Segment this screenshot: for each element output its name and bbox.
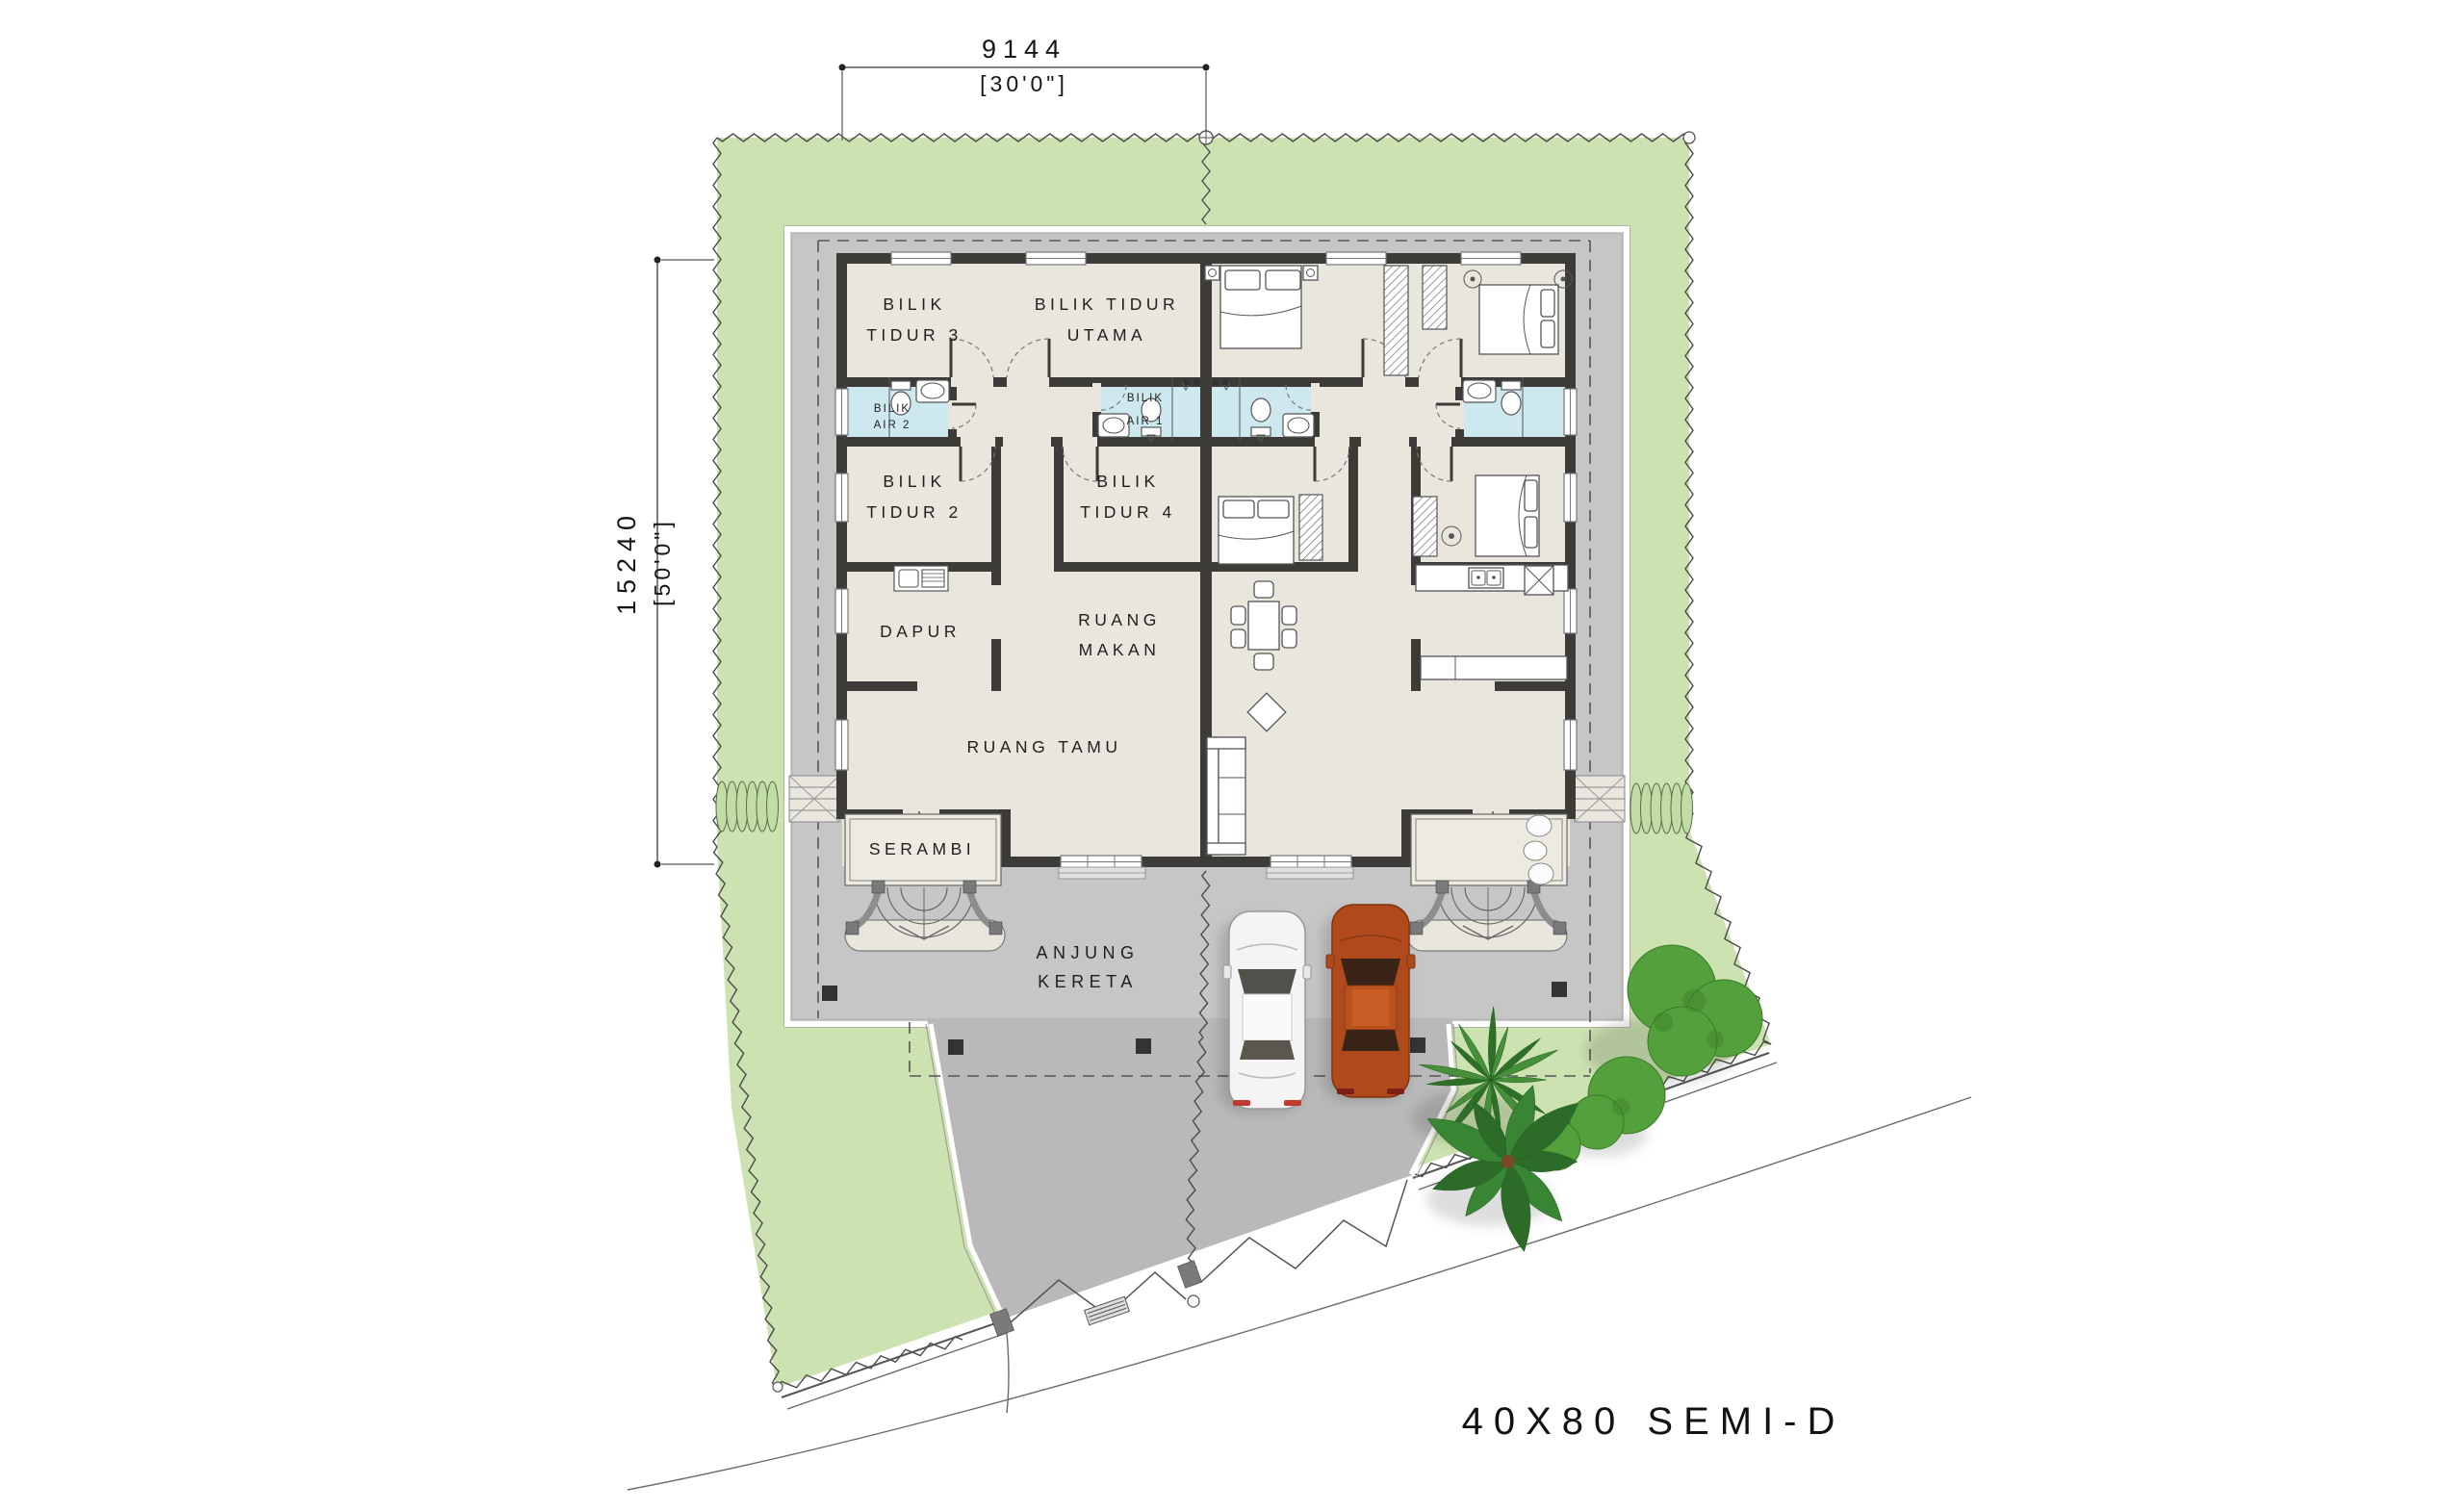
taillight — [1387, 1088, 1404, 1094]
plan-title: 40X80 SEMI-D — [1462, 1400, 1846, 1443]
front-step — [1059, 867, 1145, 879]
boundary-peg-top-right — [1683, 132, 1695, 143]
room-label-serambi: SERAMBI — [869, 839, 975, 858]
column — [1552, 982, 1567, 997]
wardrobe — [1299, 495, 1322, 560]
bed-4 — [1476, 475, 1539, 556]
kitchen-cabinet-row — [1421, 656, 1567, 679]
room-label-bilik-air-2: AIR 2 — [874, 420, 911, 431]
room-label-bilik-tidur-4: TIDUR 4 — [1080, 502, 1176, 522]
gate-pivot — [1188, 1295, 1199, 1307]
boundary-peg-bottom-left — [773, 1382, 783, 1392]
side-mirror — [1407, 955, 1415, 968]
dimension-width-ft: [30'0"] — [980, 71, 1068, 96]
sofa — [1207, 737, 1245, 855]
serambi-porch — [845, 814, 1005, 951]
wardrobe — [1384, 266, 1408, 375]
dimension-top: 9144 [30'0"] — [839, 35, 1210, 141]
room-label-bilik-tidur-2: TIDUR 2 — [866, 502, 962, 522]
white-car — [1219, 911, 1311, 1112]
room-label-anjung-kereta: KERETA — [1038, 972, 1138, 991]
gate-post-middle — [1177, 1261, 1201, 1289]
room-label-bilik-tidur-utama: UTAMA — [1067, 325, 1146, 345]
side-steps-right — [1575, 776, 1625, 822]
room-label-anjung-kereta: ANJUNG — [1036, 943, 1139, 962]
floor-plan-page: BILIK TIDUR 3 BILIK TIDUR UTAMA BILIK AI… — [0, 0, 2464, 1511]
room-label-bilik-tidur-2: BILIK — [883, 472, 945, 491]
room-label-bilik-tidur-3: BILIK — [883, 295, 945, 314]
orange-car — [1322, 905, 1415, 1101]
taillight — [1337, 1088, 1354, 1094]
room-label-bilik-air-2: BILIK — [874, 403, 911, 415]
wardrobe — [1413, 497, 1437, 556]
room-label-bilik-tidur-utama: BILIK TIDUR — [1035, 295, 1179, 314]
bed-master — [1205, 266, 1318, 348]
room-label-ruang-makan: RUANG — [1078, 610, 1161, 629]
rear-window — [1240, 1040, 1295, 1060]
side-mirror — [1223, 965, 1231, 979]
car-roof — [1243, 994, 1292, 1040]
windshield — [1238, 969, 1296, 994]
room-label-ruang-makan: MAKAN — [1079, 640, 1161, 659]
rear-window — [1342, 1030, 1399, 1051]
taillight — [1284, 1100, 1301, 1106]
room-label-ruang-tamu: RUANG TAMU — [966, 737, 1121, 756]
vent — [1193, 379, 1199, 385]
drain-grate — [1085, 1296, 1130, 1324]
windshield — [1341, 959, 1400, 986]
room-label-dapur: DAPUR — [880, 622, 961, 641]
roof-gloss — [1352, 989, 1389, 1026]
side-steps-left — [789, 776, 839, 822]
room-label-bilik-air-1: AIR 1 — [1127, 416, 1165, 427]
room-label-bilik-tidur-3: TIDUR 3 — [866, 325, 962, 345]
column — [948, 1039, 963, 1055]
side-mirror — [1303, 965, 1311, 979]
column — [1136, 1038, 1151, 1054]
dimension-depth-mm: 15240 — [612, 509, 641, 615]
side-mirror — [1326, 955, 1334, 968]
room-label-bilik-tidur-4: BILIK — [1096, 472, 1159, 491]
plant-trunk — [1501, 1155, 1515, 1168]
dimension-left: 15240 [50'0"] — [612, 257, 714, 868]
kitchen-counter — [1416, 565, 1568, 595]
taillight — [1233, 1100, 1250, 1106]
bed-3 — [1219, 497, 1294, 564]
room-label-bilik-air-1: BILIK — [1127, 393, 1164, 404]
dimension-width-mm: 9144 — [982, 35, 1066, 64]
floor-plan-canvas: BILIK TIDUR 3 BILIK TIDUR UTAMA BILIK AI… — [0, 0, 2464, 1511]
dimension-depth-ft: [50'0"] — [650, 518, 675, 606]
vent — [1184, 379, 1190, 385]
column — [1410, 1037, 1425, 1053]
wardrobe — [1423, 266, 1447, 329]
column — [822, 986, 837, 1001]
